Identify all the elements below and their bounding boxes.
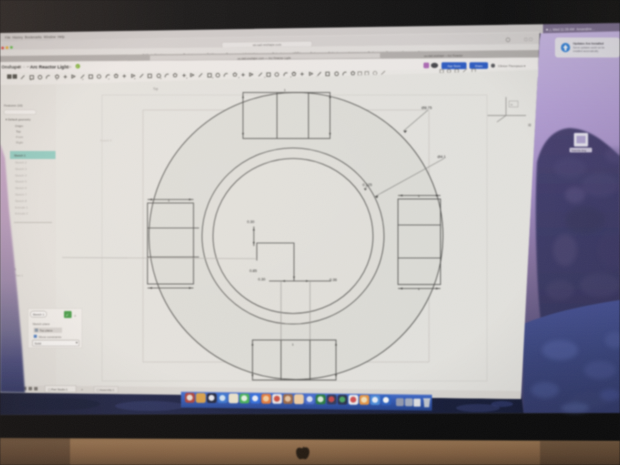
svg-text:0.30: 0.30 [247, 220, 254, 224]
svg-text:Updates Are Installed: Updates Are Installed [573, 42, 604, 46]
svg-text:Sketch 6: Sketch 6 [15, 186, 27, 190]
svg-text:Main: Main [65, 65, 72, 69]
svg-text:Top: Top [153, 87, 158, 91]
svg-text:Ø8.75: Ø8.75 [422, 106, 432, 110]
svg-text:us.cad.onshape.com: us.cad.onshape.com [253, 43, 282, 47]
svg-text:us.cad.onshape – Arc Reactor: us.cad.onshape – Arc Reactor [424, 54, 463, 58]
svg-text:0.125: 0.125 [363, 183, 373, 187]
svg-text:+: + [81, 388, 83, 392]
svg-text:Front: Front [16, 135, 23, 139]
svg-text:Sketch plane: Sketch plane [33, 322, 51, 326]
svg-text:0.36: 0.36 [330, 278, 337, 282]
svg-text:Origin: Origin [15, 124, 23, 128]
svg-text:Sketch 7: Sketch 7 [15, 193, 27, 197]
svg-text:Clinton Thompson ▾: Clinton Thompson ▾ [498, 64, 526, 68]
svg-text:Top: Top [16, 130, 21, 134]
svg-text:Extrude 1: Extrude 1 [15, 205, 28, 209]
svg-text:Features (10): Features (10) [4, 104, 23, 108]
svg-text:Sketch 2: Sketch 2 [15, 161, 27, 165]
svg-text:▩: ▩ [528, 123, 531, 127]
svg-text:Sketch 1: Sketch 1 [14, 154, 26, 158]
svg-text:Extrude 2: Extrude 2 [15, 212, 28, 216]
svg-text:Sketch 4: Sketch 4 [15, 173, 27, 177]
svg-text:Solid: Solid [35, 342, 42, 346]
svg-text:Top plane: Top plane [40, 329, 53, 333]
svg-text:Part 1: Part 1 [15, 274, 23, 278]
svg-text:Right: Right [16, 141, 23, 145]
svg-text:installed automatically: installed automatically [573, 49, 599, 53]
svg-text:■ △ Wed 11:28 AM Amandine…: ■ △ Wed 11:28 AM Amandine… [546, 27, 595, 32]
svg-text:✓: ✓ [66, 313, 69, 318]
svg-text:Sketch 8: Sketch 8 [15, 199, 27, 203]
svg-text:Sketch 3: Sketch 3 [15, 167, 27, 171]
svg-text:0.85: 0.85 [250, 269, 257, 273]
svg-text:▢ ▢: ▢ ▢ [524, 37, 533, 42]
svg-text:Sketch 1: Sketch 1 [33, 313, 45, 317]
svg-text:Arc Reactor Light: Arc Reactor Light [30, 65, 69, 70]
svg-text:Sketch 5: Sketch 5 [15, 180, 27, 184]
svg-text:Yosemite.dmg: Yosemite.dmg [571, 149, 587, 152]
svg-text:▾ Default geometry: ▾ Default geometry [6, 118, 32, 122]
svg-text:Ø4.1: Ø4.1 [438, 155, 446, 159]
svg-text:Share: Share [475, 64, 483, 68]
svg-text:▦ ☆ ↩: ▦ ☆ ↩ [18, 65, 31, 69]
svg-text:0.30: 0.30 [258, 278, 265, 282]
svg-text:App Store: App Store [447, 64, 461, 68]
svg-text:✓: ✓ [76, 65, 79, 69]
svg-text:▢ Assembly 1: ▢ Assembly 1 [97, 388, 115, 392]
svg-text:Show constraints: Show constraints [39, 335, 62, 339]
svg-text:Some updates could not be: Some updates could not be [573, 46, 605, 50]
svg-text:▢ Part Studio 1: ▢ Part Studio 1 [48, 387, 68, 391]
